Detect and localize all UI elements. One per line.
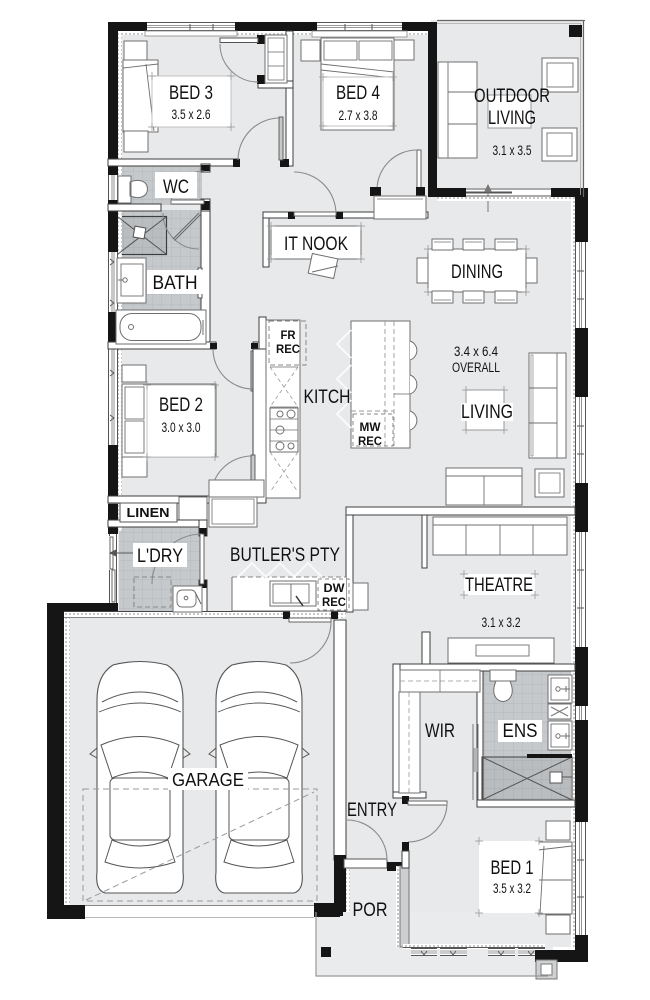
svg-text:KITCH: KITCH — [304, 386, 351, 408]
svg-text:WC: WC — [163, 176, 189, 198]
svg-text:REC: REC — [276, 342, 300, 356]
svg-text:BED 3: BED 3 — [169, 82, 213, 104]
svg-text:3.5 x 3.2: 3.5 x 3.2 — [493, 881, 531, 896]
svg-text:BED 2: BED 2 — [159, 394, 203, 416]
svg-text:LIVING: LIVING — [488, 107, 536, 129]
svg-text:BED 4: BED 4 — [336, 82, 380, 104]
svg-text:FR: FR — [281, 328, 296, 342]
svg-text:ENS: ENS — [503, 720, 538, 742]
svg-text:3.5 x 2.6: 3.5 x 2.6 — [172, 107, 211, 122]
svg-text:DW: DW — [324, 581, 346, 595]
svg-text:2.7 x 3.8: 2.7 x 3.8 — [339, 108, 378, 123]
svg-text:REC: REC — [358, 434, 382, 448]
svg-text:OVERALL: OVERALL — [452, 360, 500, 375]
svg-text:3.1 x 3.2: 3.1 x 3.2 — [482, 615, 521, 630]
svg-text:BED 1: BED 1 — [491, 857, 534, 879]
svg-text:3.1 x 3.5: 3.1 x 3.5 — [493, 143, 532, 158]
svg-text:GARAGE: GARAGE — [172, 770, 244, 790]
svg-text:POR: POR — [353, 899, 388, 921]
svg-text:IT NOOK: IT NOOK — [284, 233, 348, 255]
svg-text:ENTRY: ENTRY — [347, 799, 397, 821]
svg-text:LIVING: LIVING — [461, 401, 513, 423]
svg-text:DINING: DINING — [451, 261, 503, 283]
svg-text:3.0 x 3.0: 3.0 x 3.0 — [162, 420, 201, 435]
svg-text:WIR: WIR — [425, 720, 455, 742]
svg-text:OUTDOOR: OUTDOOR — [474, 85, 550, 107]
svg-text:LINEN: LINEN — [127, 505, 170, 520]
svg-text:L'DRY: L'DRY — [137, 545, 183, 567]
svg-text:3.4 x 6.4: 3.4 x 6.4 — [454, 344, 498, 359]
svg-text:BUTLER'S PTY: BUTLER'S PTY — [230, 544, 340, 566]
svg-text:THEATRE: THEATRE — [465, 574, 533, 596]
svg-text:REC: REC — [322, 595, 346, 609]
svg-text:BATH: BATH — [153, 272, 198, 294]
svg-text:MW: MW — [360, 420, 382, 434]
